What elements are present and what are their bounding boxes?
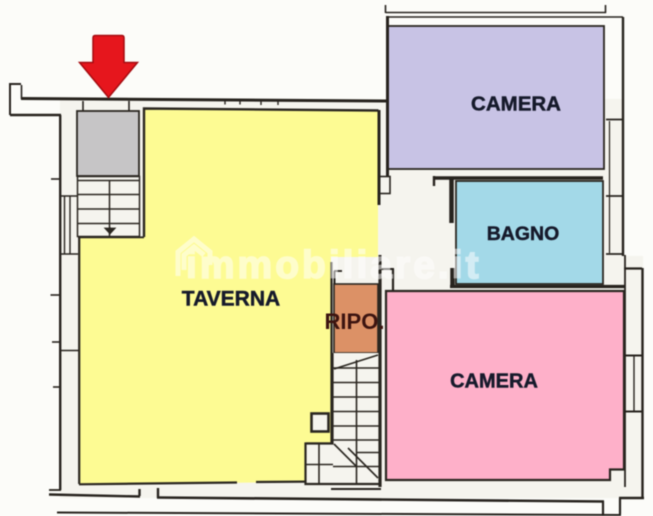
svg-text:CAMERA: CAMERA (450, 371, 538, 393)
svg-text:TAVERNA: TAVERNA (182, 288, 280, 311)
svg-text:immobiliare.it: immobiliare.it (186, 244, 482, 287)
svg-text:RIPO.: RIPO. (325, 309, 385, 334)
svg-text:BAGNO: BAGNO (487, 223, 560, 245)
svg-text:CAMERA: CAMERA (471, 93, 561, 116)
